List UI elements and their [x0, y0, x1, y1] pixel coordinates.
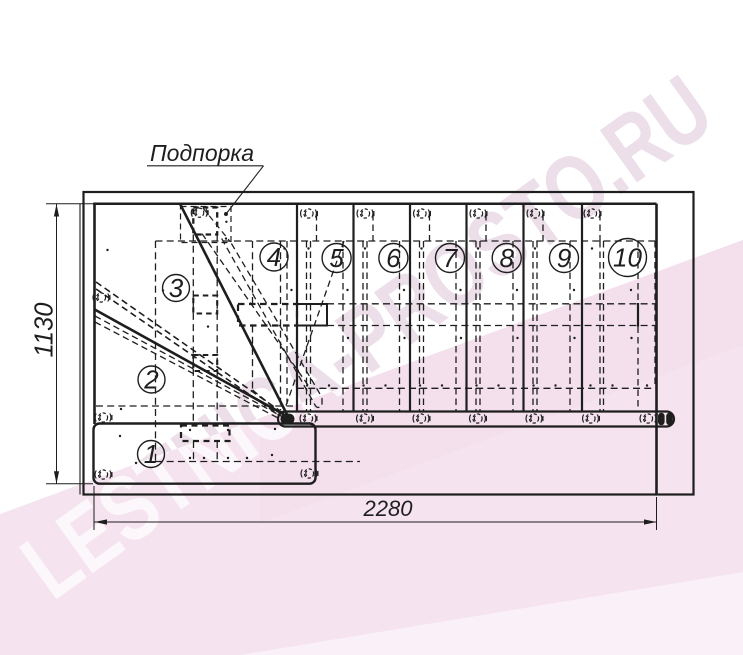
svg-text:7: 7 — [443, 243, 459, 273]
svg-text:Подпорка: Подпорка — [150, 140, 254, 166]
svg-text:10: 10 — [613, 243, 642, 273]
svg-text:9: 9 — [557, 243, 571, 273]
svg-text:2280: 2280 — [363, 496, 414, 521]
svg-text:4: 4 — [267, 242, 281, 272]
svg-text:8: 8 — [499, 243, 514, 273]
svg-text:3: 3 — [169, 273, 184, 303]
svg-text:6: 6 — [386, 243, 401, 273]
svg-text:5: 5 — [329, 243, 344, 273]
svg-text:2: 2 — [143, 365, 159, 395]
svg-text:1: 1 — [144, 439, 158, 469]
svg-text:1130: 1130 — [31, 303, 59, 358]
